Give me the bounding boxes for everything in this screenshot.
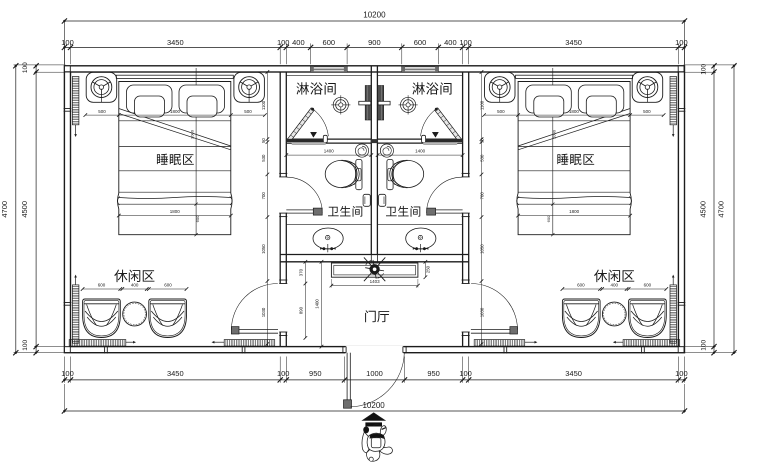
svg-text:600: 600 bbox=[644, 283, 652, 288]
svg-text:100: 100 bbox=[277, 369, 290, 378]
svg-text:50: 50 bbox=[480, 138, 485, 143]
svg-text:500: 500 bbox=[244, 109, 252, 114]
svg-text:950: 950 bbox=[309, 369, 322, 378]
svg-text:3450: 3450 bbox=[565, 38, 582, 47]
svg-text:1800: 1800 bbox=[569, 109, 580, 114]
svg-text:4500: 4500 bbox=[699, 201, 708, 218]
svg-text:400: 400 bbox=[611, 283, 619, 288]
svg-text:3450: 3450 bbox=[565, 369, 582, 378]
svg-text:1400: 1400 bbox=[324, 149, 335, 154]
svg-text:2000: 2000 bbox=[552, 129, 557, 139]
svg-text:1400: 1400 bbox=[315, 299, 320, 309]
svg-text:600: 600 bbox=[323, 38, 336, 47]
svg-text:530: 530 bbox=[480, 154, 485, 162]
svg-text:100: 100 bbox=[277, 38, 290, 47]
svg-text:700: 700 bbox=[261, 192, 266, 200]
svg-text:100: 100 bbox=[22, 62, 29, 73]
svg-text:2000: 2000 bbox=[189, 129, 194, 139]
svg-text:500: 500 bbox=[497, 109, 505, 114]
svg-text:1100: 1100 bbox=[480, 100, 485, 110]
svg-text:1403: 1403 bbox=[370, 279, 381, 284]
svg-text:3450: 3450 bbox=[167, 38, 184, 47]
svg-text:700: 700 bbox=[480, 192, 485, 200]
svg-text:530: 530 bbox=[261, 154, 266, 162]
svg-text:100: 100 bbox=[459, 38, 472, 47]
svg-text:1030: 1030 bbox=[261, 307, 266, 317]
svg-text:1030: 1030 bbox=[480, 307, 485, 317]
svg-text:100: 100 bbox=[701, 63, 708, 74]
svg-text:100: 100 bbox=[61, 369, 74, 378]
svg-text:600: 600 bbox=[577, 283, 585, 288]
svg-text:600: 600 bbox=[195, 215, 200, 222]
svg-text:100: 100 bbox=[61, 38, 74, 47]
svg-text:100: 100 bbox=[22, 339, 29, 350]
svg-text:600: 600 bbox=[164, 283, 172, 288]
svg-text:1800: 1800 bbox=[170, 209, 181, 214]
svg-text:600: 600 bbox=[414, 38, 427, 47]
svg-text:600: 600 bbox=[546, 215, 551, 222]
svg-text:4500: 4500 bbox=[20, 201, 29, 218]
svg-text:1000: 1000 bbox=[366, 369, 383, 378]
svg-text:950: 950 bbox=[427, 369, 440, 378]
svg-text:500: 500 bbox=[643, 109, 651, 114]
svg-text:100: 100 bbox=[675, 38, 688, 47]
svg-text:1800: 1800 bbox=[170, 109, 181, 114]
svg-text:500: 500 bbox=[98, 109, 106, 114]
svg-text:100: 100 bbox=[459, 369, 472, 378]
svg-text:900: 900 bbox=[368, 38, 381, 47]
svg-text:400: 400 bbox=[131, 283, 139, 288]
svg-text:1400: 1400 bbox=[415, 149, 426, 154]
svg-text:400: 400 bbox=[444, 38, 457, 47]
svg-text:400: 400 bbox=[292, 38, 305, 47]
svg-text:1100: 1100 bbox=[261, 100, 266, 110]
svg-text:890: 890 bbox=[299, 306, 304, 314]
svg-text:600: 600 bbox=[98, 283, 106, 288]
svg-text:3450: 3450 bbox=[167, 369, 184, 378]
svg-text:250: 250 bbox=[426, 265, 431, 273]
svg-text:1050: 1050 bbox=[480, 244, 485, 254]
svg-text:370: 370 bbox=[299, 268, 304, 276]
svg-text:50: 50 bbox=[261, 138, 266, 143]
svg-text:100: 100 bbox=[701, 339, 708, 350]
svg-text:4700: 4700 bbox=[717, 201, 726, 218]
svg-text:1800: 1800 bbox=[569, 209, 580, 214]
svg-text:4700: 4700 bbox=[0, 201, 9, 218]
svg-text:10200: 10200 bbox=[363, 11, 386, 20]
svg-text:10200: 10200 bbox=[362, 401, 385, 410]
svg-text:100: 100 bbox=[675, 369, 688, 378]
svg-text:1050: 1050 bbox=[261, 244, 266, 254]
